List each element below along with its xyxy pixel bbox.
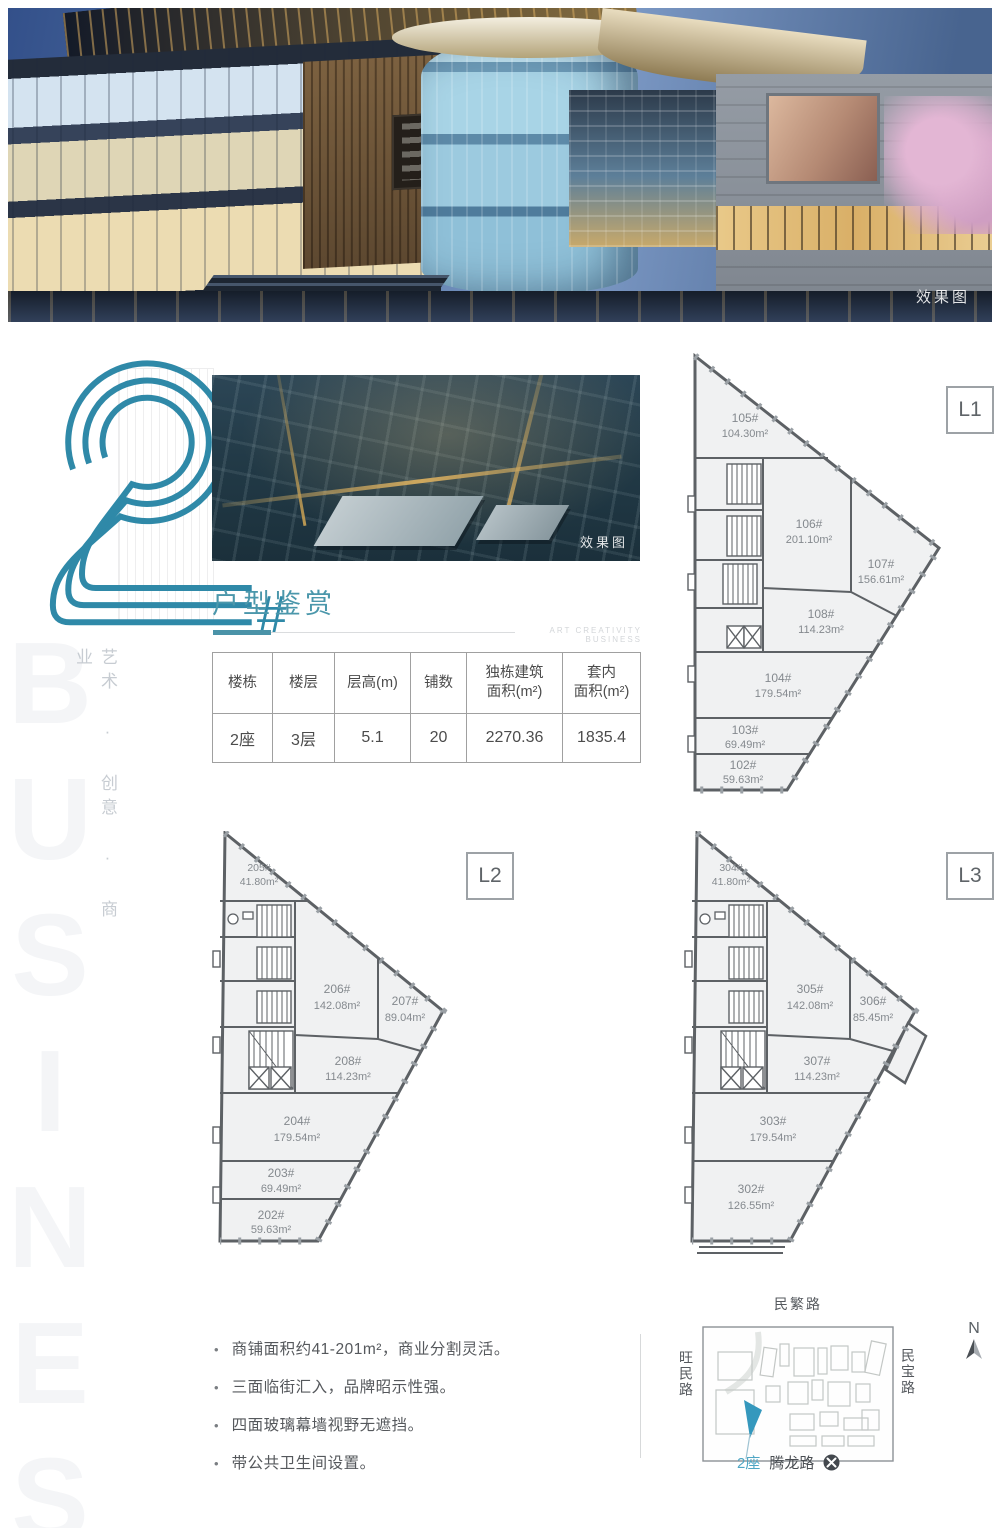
brochure-page: 效果图 BUSINESS # 艺术 · 创意 · 商业 效果图 户型鉴赏 ART… [0, 0, 1000, 1528]
svg-text:202#: 202# [258, 1208, 285, 1222]
station-road-label: 腾龙路 [769, 1452, 814, 1473]
svg-text:105#: 105# [732, 411, 759, 425]
plan-tag-l3: L3 [946, 852, 994, 900]
vertical-divider [640, 1334, 641, 1458]
svg-text:307#: 307# [804, 1054, 831, 1068]
feature-item: • 四面玻璃幕墙视野无遮挡。 [214, 1414, 626, 1437]
door-openings [213, 951, 220, 1203]
svg-text:302#: 302# [738, 1182, 765, 1196]
svg-text:69.49m²: 69.49m² [725, 739, 766, 751]
bullet-icon: • [214, 1414, 219, 1437]
svg-text:114.23m²: 114.23m² [798, 624, 844, 636]
spec-table: 楼栋 楼层 层高(m) 铺数 独栋建筑 面积(m²) 套内 面积(m²) 2座 … [212, 652, 641, 763]
val-shops: 20 [411, 714, 467, 763]
svg-text:207#: 207# [392, 994, 419, 1008]
svg-text:142.08m²: 142.08m² [314, 1000, 361, 1012]
svg-text:305#: 305# [797, 982, 824, 996]
divider-accent [213, 630, 271, 635]
bullet-icon: • [214, 1376, 219, 1399]
svg-text:103#: 103# [732, 723, 759, 737]
val-floor: 3层 [273, 714, 335, 763]
svg-text:59.63m²: 59.63m² [251, 1224, 292, 1236]
svg-text:41.80m²: 41.80m² [240, 876, 279, 888]
val-net-area: 1835.4 [563, 714, 641, 763]
road-label-left: 旺民路 [676, 1350, 696, 1398]
svg-text:85.45m²: 85.45m² [853, 1012, 894, 1024]
section-title: 户型鉴赏 [212, 582, 336, 621]
spec-header-row: 楼栋 楼层 层高(m) 铺数 独栋建筑 面积(m²) 套内 面积(m²) [213, 653, 641, 714]
location-map [702, 1326, 894, 1462]
svg-text:205#: 205# [247, 862, 271, 874]
svg-text:102#: 102# [730, 758, 757, 772]
svg-text:303#: 303# [760, 1114, 787, 1128]
svg-text:156.61m²: 156.61m² [858, 574, 905, 586]
mid-glass-box [569, 90, 736, 247]
divider-line [271, 632, 515, 633]
spec-data-row: 2座 3层 5.1 20 2270.36 1835.4 [213, 714, 641, 763]
billboard [766, 93, 880, 184]
svg-text:203#: 203# [268, 1166, 295, 1180]
svg-text:104#: 104# [765, 671, 792, 685]
plan-tag-l2: L2 [466, 852, 514, 900]
svg-text:126.55m²: 126.55m² [728, 1200, 775, 1212]
svg-text:114.23m²: 114.23m² [325, 1071, 371, 1083]
section-tagline: ART CREATIVITY BUSINESS [518, 626, 642, 644]
building-2-label: 2座 [737, 1452, 760, 1473]
slogan-vertical: 艺术 · 创意 · 商业 [70, 648, 120, 938]
aerial-rendering-photo: 效果图 [212, 375, 640, 561]
svg-text:142.08m²: 142.08m² [787, 1000, 834, 1012]
road-label-right: 民宝路 [898, 1348, 918, 1396]
compass-n-label: N [964, 1320, 984, 1338]
road-label-top: 民繁路 [702, 1294, 894, 1314]
svg-text:59.63m²: 59.63m² [723, 774, 764, 786]
col-shops: 铺数 [411, 653, 467, 714]
col-net-area: 套内 面积(m²) [563, 653, 641, 714]
svg-text:204#: 204# [284, 1114, 311, 1128]
hero-rendering-photo: 效果图 [8, 8, 992, 322]
metro-icon [823, 1454, 840, 1471]
feature-item: • 带公共卫生间设置。 [214, 1452, 626, 1475]
col-height: 层高(m) [335, 653, 411, 714]
aerial-road [275, 375, 307, 527]
val-height: 5.1 [335, 714, 411, 763]
svg-text:306#: 306# [860, 994, 887, 1008]
hero-caption: 效果图 [916, 286, 970, 307]
compass: N [964, 1320, 984, 1364]
svg-text:69.49m²: 69.49m² [261, 1183, 302, 1195]
val-gross-area: 2270.36 [467, 714, 563, 763]
svg-text:206#: 206# [324, 982, 351, 996]
svg-text:208#: 208# [335, 1054, 362, 1068]
col-gross-area: 独栋建筑 面积(m²) [467, 653, 563, 714]
feature-item: • 三面临街汇入，品牌昭示性强。 [214, 1376, 626, 1399]
feature-item: • 商铺面积约41-201m²，商业分割灵活。 [214, 1338, 626, 1361]
aerial-caption: 效果图 [580, 532, 628, 551]
aerial-building [476, 505, 569, 540]
svg-text:179.54m²: 179.54m² [750, 1132, 797, 1144]
svg-text:106#: 106# [796, 517, 823, 531]
svg-text:114.23m²: 114.23m² [794, 1071, 840, 1083]
map-bottom-labels: 2座 腾龙路 [737, 1452, 840, 1473]
elevator-core [727, 626, 761, 648]
svg-text:104.30m²: 104.30m² [722, 428, 769, 440]
bullet-icon: • [214, 1338, 219, 1361]
svg-text:107#: 107# [868, 557, 895, 571]
floor-plan-l2: 205#41.80m² 206#142.08m² 207#89.04m² 208… [193, 831, 465, 1259]
col-building: 楼栋 [213, 653, 273, 714]
plaza [8, 291, 992, 322]
svg-text:41.80m²: 41.80m² [712, 876, 751, 888]
svg-text:304#: 304# [719, 862, 743, 874]
pink-tree [884, 96, 992, 234]
plan-tag-l1: L1 [946, 386, 994, 434]
door-openings [685, 951, 692, 1203]
svg-text:179.54m²: 179.54m² [274, 1132, 321, 1144]
floor-plan-l1: 105#104.30m² 106#201.10m² 107#156.61m² 1… [683, 350, 945, 805]
svg-text:89.04m²: 89.04m² [385, 1012, 426, 1024]
north-arrow-icon [964, 1338, 984, 1360]
val-building: 2座 [213, 714, 273, 763]
col-floor: 楼层 [273, 653, 335, 714]
bullet-icon: • [214, 1452, 219, 1475]
floor-plan-l3: 304#41.80m² 305#142.08m² 306#85.45m² 307… [665, 831, 937, 1259]
svg-text:108#: 108# [808, 607, 835, 621]
svg-text:179.54m²: 179.54m² [755, 688, 802, 700]
aerial-building [313, 496, 483, 546]
svg-text:201.10m²: 201.10m² [786, 534, 833, 546]
feature-list: • 商铺面积约41-201m²，商业分割灵活。 • 三面临街汇入，品牌昭示性强。… [214, 1338, 626, 1490]
